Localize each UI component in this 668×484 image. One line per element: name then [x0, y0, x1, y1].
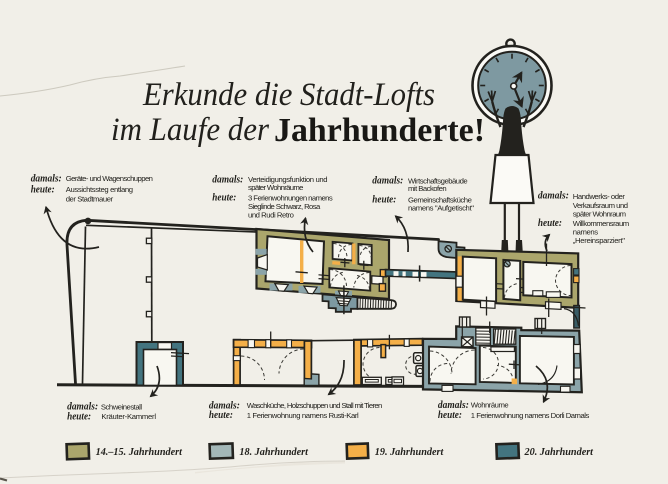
svg-text:Jahrhunderte!: Jahrhunderte!	[274, 112, 485, 149]
svg-text:20. Jahrhundert: 20. Jahrhundert	[524, 447, 595, 458]
svg-text:Wohnräume: Wohnräume	[471, 401, 509, 410]
svg-text:heute:: heute:	[438, 410, 462, 421]
svg-text:heute:: heute:	[372, 195, 396, 206]
svg-text:damals:: damals:	[212, 175, 243, 186]
svg-text:heute:: heute:	[31, 184, 55, 195]
svg-text:und Rudi Retro: und Rudi Retro	[248, 210, 294, 219]
svg-text:namens: namens	[573, 228, 598, 237]
svg-text:namens "Aufgetischt": namens "Aufgetischt"	[408, 204, 474, 213]
svg-text:1 Ferienwohnung namens Dorli D: 1 Ferienwohnung namens Dorli Damals	[471, 411, 590, 420]
svg-text:heute:: heute:	[209, 410, 233, 421]
svg-text:damals:: damals:	[538, 191, 569, 202]
svg-text:damals:: damals:	[31, 174, 62, 185]
svg-text:heute:: heute:	[67, 411, 91, 422]
svg-text:heute:: heute:	[212, 193, 236, 204]
svg-text:mit Backofen: mit Backofen	[408, 184, 447, 193]
svg-text:der Stadtmauer: der Stadtmauer	[66, 194, 114, 203]
svg-text:14.–15. Jahrhundert: 14.–15. Jahrhundert	[96, 447, 184, 458]
svg-text:Schweinestall: Schweinestall	[101, 402, 142, 411]
svg-text:Kräuter-Kammerl: Kräuter-Kammerl	[101, 412, 156, 421]
svg-text:damals:: damals:	[372, 176, 403, 187]
svg-text:heute:: heute:	[538, 218, 562, 229]
svg-text:1 Ferienwohnung namens Rusti-K: 1 Ferienwohnung namens Rusti-Karl	[247, 411, 359, 420]
svg-text:im Laufe der: im Laufe der	[111, 112, 269, 148]
svg-text:19. Jahrhundert: 19. Jahrhundert	[375, 447, 445, 458]
svg-text:Geräte- und Wagenschuppen: Geräte- und Wagenschuppen	[66, 174, 153, 183]
svg-text:„Hereinsparziert": „Hereinsparziert"	[573, 236, 625, 245]
svg-text:später Wohnraum: später Wohnraum	[573, 210, 626, 219]
svg-text:18. Jahrhundert: 18. Jahrhundert	[239, 447, 309, 458]
svg-text:später Wohnräume: später Wohnräume	[248, 183, 304, 192]
svg-text:Waschküche, Holzschuppen und S: Waschküche, Holzschuppen und Stall mit T…	[247, 401, 383, 410]
svg-text:Verkaufsraum und: Verkaufsraum und	[573, 201, 628, 210]
svg-text:Handwerks- oder: Handwerks- oder	[573, 192, 626, 201]
svg-text:Erkunde die Stadt-Lofts: Erkunde die Stadt-Lofts	[142, 77, 435, 113]
svg-text:Aussichtssteg entlang: Aussichtssteg entlang	[66, 185, 133, 194]
